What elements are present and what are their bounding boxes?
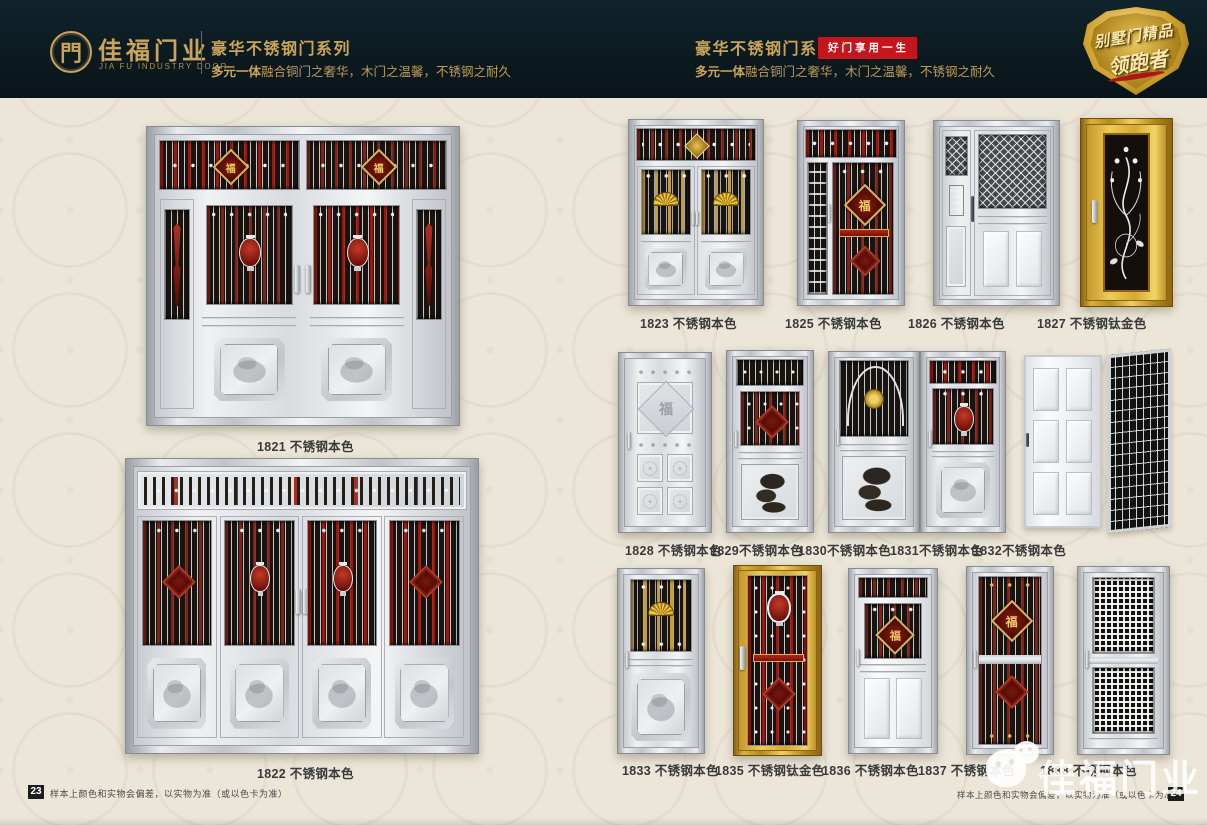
tassel-ornament bbox=[423, 223, 435, 306]
door-panel bbox=[864, 678, 890, 739]
groove-line bbox=[978, 216, 1047, 218]
door-leaf: 福 bbox=[803, 126, 899, 300]
panel-etching bbox=[323, 671, 361, 716]
groove-line bbox=[860, 664, 926, 666]
door-panel bbox=[1016, 231, 1042, 287]
ornament-dots bbox=[634, 641, 689, 647]
door-1821-image: 福 福 bbox=[146, 126, 460, 426]
door-leaf: 福 bbox=[854, 574, 932, 748]
door-handle bbox=[306, 265, 311, 293]
embossed-panel bbox=[214, 338, 285, 401]
etched-art bbox=[746, 468, 795, 515]
stile-grille bbox=[808, 163, 827, 294]
transom-grille bbox=[930, 361, 995, 383]
door-leaf-gold bbox=[1086, 124, 1167, 301]
door-label-1823: 1823 不锈钢本色 bbox=[640, 313, 737, 332]
groove-line bbox=[738, 452, 802, 454]
grille-window bbox=[748, 576, 806, 744]
logo-glyph: 門 bbox=[60, 36, 82, 68]
door-leaf bbox=[634, 125, 758, 300]
panel-etching bbox=[227, 349, 272, 389]
groove-line bbox=[738, 458, 802, 460]
door-label-1836: 1836 不锈钢本色 bbox=[822, 760, 919, 779]
gold-fan-ornament bbox=[649, 603, 673, 615]
fu-ornament: 福 bbox=[991, 599, 1033, 641]
door-panel bbox=[1066, 472, 1093, 515]
flower-dots bbox=[737, 360, 804, 385]
rosette-ornament bbox=[642, 493, 658, 510]
door-1837-image: 福 bbox=[966, 566, 1054, 755]
mid-band bbox=[979, 655, 1041, 663]
door-handle bbox=[626, 651, 629, 668]
door-handle bbox=[974, 650, 977, 668]
door-handle bbox=[837, 428, 840, 445]
ornament-dots bbox=[933, 367, 993, 377]
embossed-panel bbox=[936, 462, 991, 518]
panel-etching bbox=[405, 671, 443, 716]
door-1827-image bbox=[1080, 118, 1173, 307]
fu-character: 福 bbox=[1006, 612, 1018, 629]
side-stile bbox=[942, 130, 971, 295]
door-leaf-3 bbox=[302, 516, 382, 737]
diamond-panel: 福 bbox=[637, 382, 693, 434]
rosette-ornament bbox=[672, 493, 688, 510]
door-1832-image bbox=[1022, 350, 1172, 533]
mesh-window bbox=[946, 137, 967, 175]
grille-window bbox=[143, 521, 212, 645]
transom-strip bbox=[137, 471, 467, 510]
groove-line bbox=[202, 325, 296, 327]
door-handle bbox=[692, 211, 694, 225]
knot-ornament bbox=[849, 245, 880, 276]
door-handle bbox=[296, 589, 301, 614]
ornament-dots bbox=[868, 607, 917, 612]
motif-row bbox=[638, 368, 692, 376]
transom-grille bbox=[737, 360, 804, 385]
door-panel bbox=[1033, 368, 1060, 411]
door-label-1825: 1825 不锈钢本色 bbox=[785, 313, 882, 332]
lattice-window bbox=[1093, 578, 1155, 652]
mid-band bbox=[1089, 657, 1157, 664]
fu-ornament: 福 bbox=[875, 615, 915, 655]
door-label-1828: 1828 不锈钢本色 bbox=[625, 540, 722, 559]
embossed-panel bbox=[147, 658, 206, 729]
gold-dots bbox=[981, 581, 1038, 589]
door-1825-image: 福 bbox=[797, 120, 905, 306]
door-label-1833: 1833 不锈钢本色 bbox=[622, 760, 719, 779]
door-label-1821: 1821 不锈钢本色 bbox=[257, 436, 354, 455]
red-bar-ornament bbox=[753, 654, 804, 663]
gold-fan-ornament bbox=[654, 193, 678, 205]
door-1836-image: 福 bbox=[848, 568, 938, 754]
door-leaf-1 bbox=[137, 516, 217, 737]
door-label-1830: 1830不锈钢本色 bbox=[798, 540, 891, 559]
grille-window bbox=[207, 206, 293, 305]
fu-character: 福 bbox=[659, 399, 673, 419]
door-leaf-left bbox=[197, 199, 301, 409]
brand-logo-icon: 門 bbox=[50, 31, 92, 73]
grille-window bbox=[631, 580, 692, 651]
groove-line bbox=[932, 451, 994, 453]
tassel-ornament bbox=[171, 223, 183, 306]
groove-line bbox=[202, 317, 296, 319]
door-leaf: 福 福 bbox=[154, 134, 452, 418]
groove-line bbox=[840, 450, 907, 452]
door-leaf bbox=[133, 466, 471, 746]
groove-line bbox=[629, 665, 693, 667]
lantern-ornament bbox=[250, 565, 270, 592]
ornament-dots bbox=[705, 173, 748, 179]
door-1829-image bbox=[726, 350, 814, 533]
door-leaf-2 bbox=[220, 516, 300, 737]
grille-window bbox=[642, 170, 690, 234]
fu-character: 福 bbox=[889, 627, 900, 643]
groove-line bbox=[310, 325, 404, 327]
door-label-1832: 1832不锈钢本色 bbox=[973, 540, 1066, 559]
embossed-panel bbox=[645, 248, 688, 289]
door-label-1822: 1822 不锈钢本色 bbox=[257, 763, 354, 782]
ornament-dots bbox=[212, 210, 287, 220]
door-1833-image bbox=[617, 568, 705, 754]
groove-line bbox=[860, 671, 926, 673]
stile-panel bbox=[946, 226, 966, 287]
groove-line bbox=[840, 444, 907, 446]
series-title-right: 豪华不锈钢门系列 bbox=[695, 35, 835, 59]
knot-ornament bbox=[409, 565, 443, 599]
grille-window bbox=[933, 389, 992, 443]
grille-window bbox=[314, 206, 400, 305]
door-leaf bbox=[1083, 572, 1164, 749]
white-door-leaf bbox=[1024, 355, 1102, 527]
brand-name: 佳福门业 bbox=[98, 31, 210, 66]
panel-etching bbox=[652, 256, 679, 282]
wechat-bubble-small bbox=[1014, 741, 1039, 764]
door-1835-image bbox=[733, 565, 822, 756]
series-title-left: 豪华不锈钢门系列 bbox=[211, 35, 351, 59]
groove-line bbox=[629, 659, 693, 661]
lantern-ornament bbox=[954, 406, 974, 432]
grille-window: 福 bbox=[833, 163, 893, 294]
watermark-brand-text: 佳福门业 bbox=[1038, 748, 1202, 803]
door-1831-image bbox=[920, 351, 1006, 533]
grille-window bbox=[308, 521, 377, 645]
door-1828-image: 福 bbox=[618, 352, 712, 533]
door-handle bbox=[1092, 200, 1097, 223]
door-leaf: 福 bbox=[972, 572, 1048, 749]
door-handle bbox=[1026, 433, 1029, 447]
embossed-panel bbox=[312, 658, 371, 729]
fu-character: 福 bbox=[226, 160, 236, 175]
ornament-dots bbox=[319, 210, 394, 220]
series-subtitle-right: 多元一体融合铜门之奢华，木门之温馨，不锈钢之耐久 bbox=[695, 61, 995, 80]
scrollwork-panel bbox=[1103, 133, 1150, 292]
gold-emblem bbox=[865, 390, 883, 408]
ornament-dots bbox=[144, 483, 461, 499]
ornament-dots bbox=[836, 167, 889, 176]
square-panel bbox=[667, 487, 693, 515]
rosette-ornament bbox=[672, 460, 688, 477]
footer-note-left: 样本上颜色和实物会偏差，以实物为准（或以色卡为准） bbox=[50, 787, 288, 800]
square-panel bbox=[667, 454, 693, 482]
wechat-eye bbox=[1028, 747, 1032, 751]
door-label-1835: 1835 不锈钢钛金色 bbox=[715, 760, 825, 779]
brand-name-en: JIA FU INDUSTRY DOOR bbox=[99, 62, 228, 71]
fu-ornament: 福 bbox=[213, 149, 250, 186]
groove-line bbox=[641, 241, 692, 243]
door-1838-image bbox=[1077, 566, 1170, 755]
door-label-1827: 1827 不锈钢钛金色 bbox=[1037, 313, 1147, 332]
scrollwork-art bbox=[1104, 138, 1148, 288]
grille-window: 福 bbox=[979, 577, 1041, 743]
door-leaf bbox=[732, 356, 808, 527]
embossed-panel bbox=[631, 673, 690, 741]
page-number-left: 23 bbox=[28, 785, 44, 799]
red-bar-ornament bbox=[839, 229, 889, 237]
side-stile bbox=[412, 199, 446, 409]
panel-etching bbox=[158, 671, 196, 716]
catalog-spread: 門 佳福门业 JIA FU INDUSTRY DOOR 豪华不锈钢门系列 多元一… bbox=[0, 0, 1207, 825]
door-handle bbox=[740, 646, 745, 670]
door-panel bbox=[1033, 420, 1060, 463]
door-1823-image bbox=[628, 119, 764, 306]
transom-grille: 福 bbox=[160, 141, 299, 189]
fu-ornament-faint: 福 bbox=[638, 381, 695, 438]
door-handle bbox=[303, 589, 308, 614]
door-panel bbox=[983, 231, 1009, 287]
door-panel bbox=[1066, 420, 1093, 463]
ornament-dots bbox=[311, 525, 373, 536]
grille-window bbox=[390, 521, 459, 645]
panel-etching bbox=[642, 685, 680, 728]
ornament-dots bbox=[146, 525, 208, 536]
header-bar: 門 佳福门业 JIA FU INDUSTRY DOOR 豪华不锈钢门系列 多元一… bbox=[0, 0, 1207, 98]
fu-ornament: 福 bbox=[844, 183, 886, 225]
knot-ornament bbox=[162, 565, 196, 599]
main-leaf bbox=[974, 130, 1051, 295]
door-label-1831: 1831不锈钢本色 bbox=[890, 540, 983, 559]
wechat-eye bbox=[996, 761, 1001, 767]
mesh-window bbox=[979, 135, 1045, 208]
ornament-dots bbox=[393, 525, 455, 536]
fu-ornament: 福 bbox=[360, 149, 397, 186]
slogan-badge: 好门享用一生 bbox=[818, 37, 917, 59]
door-label-1826: 1826 不锈钢本色 bbox=[908, 313, 1005, 332]
stile-grille bbox=[165, 210, 190, 319]
door-leaf-right bbox=[304, 199, 408, 409]
grille-window bbox=[702, 170, 750, 234]
door-handle bbox=[295, 265, 300, 293]
fu-character: 福 bbox=[374, 160, 384, 175]
door-leaf-4 bbox=[384, 516, 464, 737]
wechat-eye bbox=[1019, 748, 1023, 752]
door-leaf bbox=[834, 357, 914, 527]
ornament-dots bbox=[809, 138, 892, 149]
motif-row bbox=[638, 441, 692, 449]
ornament-dots bbox=[937, 391, 989, 396]
panel-etching bbox=[334, 349, 379, 389]
square-panel bbox=[637, 454, 663, 482]
stile-grille bbox=[417, 210, 442, 319]
lantern-ornament bbox=[347, 238, 369, 267]
brand-watermark: 佳福门业 bbox=[978, 738, 1203, 810]
transom-grille bbox=[806, 130, 896, 157]
door-1822-image bbox=[125, 458, 479, 754]
ornament-dots bbox=[645, 173, 688, 179]
door-leaf-left bbox=[637, 166, 695, 295]
gold-fan-ornament bbox=[714, 193, 738, 205]
door-1830-image bbox=[828, 351, 920, 533]
door-handle bbox=[628, 432, 631, 449]
lantern-ornament bbox=[333, 565, 353, 592]
lattice-window bbox=[1093, 668, 1155, 733]
subtitle-rest: 融合铜门之奢华，木门之温馨，不锈钢之耐久 bbox=[745, 65, 995, 79]
gold-diamond-ornament bbox=[684, 133, 709, 158]
ornament-dots bbox=[634, 584, 689, 590]
subtitle-rest: 融合铜门之奢华，木门之温馨，不锈钢之耐久 bbox=[261, 65, 511, 79]
groove-line bbox=[932, 456, 994, 458]
embossed-panel bbox=[395, 658, 454, 729]
groove-line bbox=[978, 223, 1047, 225]
door-leaf bbox=[623, 574, 699, 748]
grille-window bbox=[225, 521, 294, 645]
transom-grille bbox=[637, 129, 755, 160]
square-panel bbox=[637, 487, 663, 515]
door-leaf-gold bbox=[738, 570, 817, 751]
groove-line bbox=[310, 317, 404, 319]
embossed-panel bbox=[705, 248, 748, 289]
door-handle bbox=[696, 211, 698, 225]
door-panel bbox=[896, 678, 922, 739]
door-handle bbox=[857, 649, 860, 666]
panel-etching bbox=[240, 671, 278, 716]
door-leaf: 福 bbox=[624, 358, 706, 527]
door-handle bbox=[929, 430, 932, 447]
door-handle bbox=[1086, 650, 1089, 668]
grille-window: 福 bbox=[865, 604, 921, 658]
door-leaf bbox=[939, 126, 1054, 300]
ornament-dots bbox=[229, 525, 291, 536]
door-panel bbox=[1033, 472, 1060, 515]
fu-character: 福 bbox=[859, 196, 871, 213]
grille-window bbox=[840, 361, 907, 436]
door-panel bbox=[1066, 368, 1093, 411]
premium-emblem: 别墅门精品 领跑者 bbox=[1083, 7, 1189, 95]
knot-ornament bbox=[995, 675, 1029, 709]
door-handle bbox=[735, 430, 738, 447]
etched-art-panel bbox=[741, 464, 799, 520]
lantern-ornament bbox=[239, 238, 261, 267]
panel-etching bbox=[945, 472, 980, 508]
groove-line bbox=[701, 241, 752, 243]
embossed-panel bbox=[321, 338, 392, 401]
door-handle bbox=[828, 204, 831, 221]
door-leaf-right bbox=[697, 166, 755, 295]
series-subtitle-left: 多元一体融合铜门之奢华，木门之温馨，不锈钢之耐久 bbox=[211, 61, 511, 80]
transom-grille: 福 bbox=[307, 141, 446, 189]
subtitle-strong: 多元一体 bbox=[211, 65, 261, 79]
subtitle-strong: 多元一体 bbox=[695, 65, 745, 79]
door-1826-image bbox=[933, 120, 1060, 306]
rosette-ornament bbox=[642, 460, 658, 477]
wechat-eye bbox=[1009, 759, 1014, 765]
intercom-unit bbox=[949, 185, 964, 216]
side-stile bbox=[160, 199, 194, 409]
door-leaf bbox=[926, 357, 1000, 527]
panel-etching bbox=[712, 256, 739, 282]
door-handle bbox=[971, 196, 974, 222]
grille-window bbox=[741, 392, 799, 445]
etched-art-panel bbox=[842, 456, 906, 521]
door-label-1829: 1829不锈钢本色 bbox=[710, 540, 803, 559]
embossed-panel bbox=[230, 658, 289, 729]
transom-grille bbox=[859, 578, 928, 597]
security-screen-leaf bbox=[1108, 349, 1171, 533]
etched-art bbox=[847, 461, 901, 515]
header-divider bbox=[201, 31, 202, 74]
